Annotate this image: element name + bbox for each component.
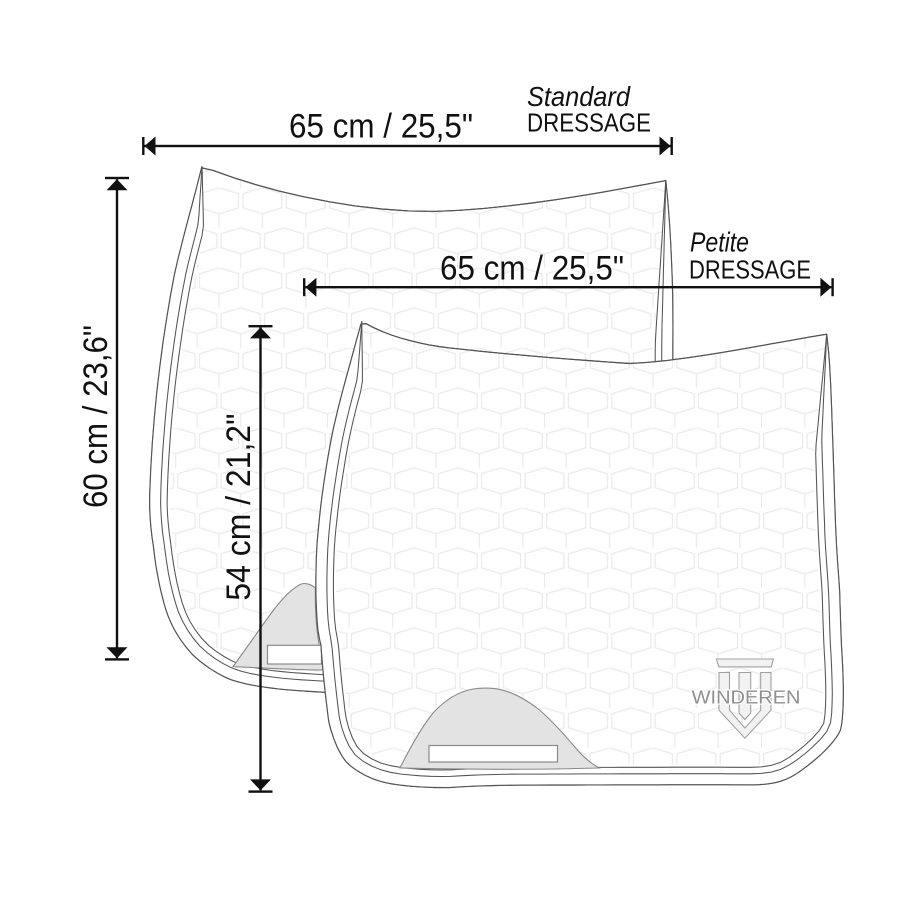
svg-text:65 cm / 25,5": 65 cm / 25,5" [289,107,473,145]
svg-text:54 cm / 21,2": 54 cm / 21,2" [220,414,258,601]
svg-text:Petite: Petite [690,227,749,258]
svg-text:WINDEREN: WINDEREN [692,686,801,707]
svg-text:DRESSAGE: DRESSAGE [689,254,811,284]
svg-text:65 cm / 25,5": 65 cm / 25,5" [440,250,624,288]
svg-text:DRESSAGE: DRESSAGE [527,108,651,138]
svg-text:60 cm / 23,6": 60 cm / 23,6" [77,325,115,508]
